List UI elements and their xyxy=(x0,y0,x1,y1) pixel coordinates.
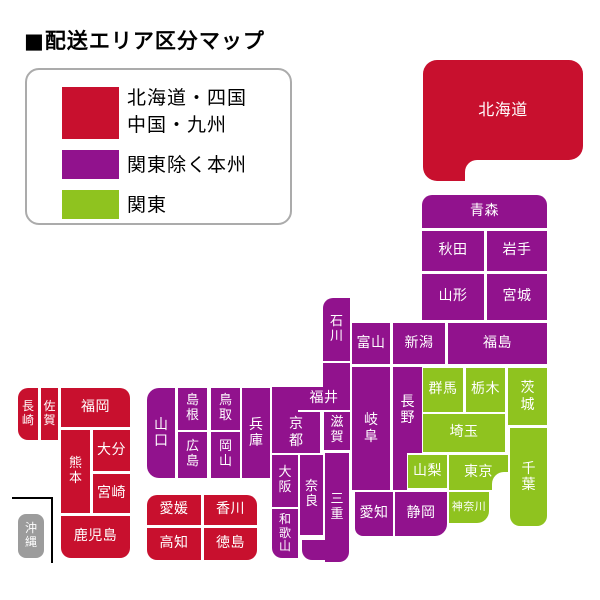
prefecture-label: 三重 xyxy=(331,493,344,523)
prefecture-cell-miyagi: 宮城 xyxy=(487,274,547,320)
prefecture-label: 島根 xyxy=(186,394,199,424)
prefecture-cell-kagawa: 香川 xyxy=(204,495,257,525)
prefecture-label: 新潟 xyxy=(405,336,434,351)
prefecture-label: 山形 xyxy=(439,289,468,304)
prefecture-cell-toyama: 富山 xyxy=(352,323,390,364)
prefecture-cell-chiba: 千葉 xyxy=(510,428,547,526)
prefecture-cell-gifu: 岐阜 xyxy=(352,367,390,490)
prefecture-label: 滋賀 xyxy=(331,416,344,446)
prefecture-label: 秋田 xyxy=(439,243,468,258)
prefecture-cell-miyazaki: 宮崎 xyxy=(93,474,130,513)
prefecture-cell-kyoto: 京都 xyxy=(272,412,320,453)
prefecture-label: 山梨 xyxy=(413,464,442,479)
prefecture-cell-shiga: 滋賀 xyxy=(324,412,350,450)
prefecture-label: 岡山 xyxy=(219,440,232,470)
tokyo-bay-notch xyxy=(492,472,508,490)
prefecture-cell-mie-foot xyxy=(302,540,328,560)
prefecture-label: 和歌山 xyxy=(279,513,291,554)
legend-swatch-red xyxy=(62,87,119,139)
prefecture-cell-nagano-leg xyxy=(393,452,407,490)
prefecture-label: 宮城 xyxy=(503,289,532,304)
prefecture-cell-nara: 奈良 xyxy=(300,455,323,535)
prefecture-label: 岐阜 xyxy=(364,412,378,444)
prefecture-label: 沖縄 xyxy=(25,522,37,550)
prefecture-cell-ishikawa: 石川 xyxy=(323,298,350,361)
legend: 北海道・四国 中国・九州 関東除く本州 関東 xyxy=(25,68,292,225)
okinawa-divider-line-vertical xyxy=(51,497,53,563)
prefecture-cell-fukushima: 福島 xyxy=(448,323,547,364)
prefecture-label: 長野 xyxy=(401,394,415,426)
prefecture-cell-iwate: 岩手 xyxy=(487,231,547,271)
prefecture-label: 徳島 xyxy=(216,536,245,551)
prefecture-cell-aichi: 愛知 xyxy=(355,492,393,536)
legend-label-purple: 関東除く本州 xyxy=(127,152,247,179)
prefecture-label: 宮崎 xyxy=(97,486,126,501)
prefecture-label: 奈良 xyxy=(305,480,318,510)
prefecture-label: 高知 xyxy=(160,536,189,551)
prefecture-label: 大阪 xyxy=(279,466,292,496)
prefecture-label: 香川 xyxy=(216,502,245,517)
legend-label-red: 北海道・四国 中国・九州 xyxy=(127,85,247,139)
prefecture-label: 群馬 xyxy=(429,382,458,397)
prefecture-cell-fukuoka: 福岡 xyxy=(61,388,130,427)
prefecture-label: 熊本 xyxy=(69,457,82,487)
prefecture-label: 石川 xyxy=(330,315,343,345)
legend-label-green: 関東 xyxy=(127,192,167,219)
prefecture-label: 埼玉 xyxy=(450,425,479,440)
prefecture-cell-tokushima: 徳島 xyxy=(204,528,257,560)
prefecture-label: 東京 xyxy=(464,465,493,480)
prefecture-cell-kagoshima: 鹿児島 xyxy=(61,516,130,558)
prefecture-cell-tottori: 鳥取 xyxy=(211,388,240,430)
prefecture-label: 福島 xyxy=(483,336,512,351)
prefecture-cell-kyoto-top xyxy=(272,387,298,414)
page-title: ■配送エリア区分マップ xyxy=(24,25,265,55)
prefecture-cell-okayama: 岡山 xyxy=(211,432,240,478)
prefecture-cell-nagano: 長野 xyxy=(393,367,422,453)
prefecture-cell-shizuoka: 静岡 xyxy=(395,492,447,536)
prefecture-label: 福岡 xyxy=(81,400,110,415)
prefecture-cell-hokkaido-foot xyxy=(423,130,465,181)
prefecture-cell-tochigi: 栃木 xyxy=(466,368,505,412)
prefecture-label: 千葉 xyxy=(522,461,536,493)
prefecture-cell-kanagawa: 神奈川 xyxy=(449,492,489,523)
prefecture-label: 愛媛 xyxy=(160,502,189,517)
prefecture-label: 富山 xyxy=(357,336,386,351)
prefecture-cell-okinawa: 沖縄 xyxy=(18,514,44,558)
prefecture-label: 鳥取 xyxy=(219,394,232,424)
okinawa-divider-line-horizontal xyxy=(12,497,53,499)
prefecture-label: 福井 xyxy=(310,391,339,406)
prefecture-cell-wakayama: 和歌山 xyxy=(272,509,298,558)
prefecture-cell-yamaguchi: 山口 xyxy=(147,388,175,478)
prefecture-cell-fukui-neck xyxy=(323,363,350,389)
prefecture-label: 茨城 xyxy=(521,380,535,412)
prefecture-label: 長崎 xyxy=(22,400,34,428)
prefecture-cell-yamagata: 山形 xyxy=(422,274,484,320)
prefecture-label: 愛知 xyxy=(360,506,389,521)
prefecture-cell-kochi: 高知 xyxy=(147,528,201,560)
prefecture-label: 大分 xyxy=(97,443,126,458)
prefecture-cell-shimane: 島根 xyxy=(178,388,207,430)
prefecture-label: 京都 xyxy=(289,416,303,448)
prefecture-cell-ehime: 愛媛 xyxy=(147,495,201,525)
prefecture-cell-saitama: 埼玉 xyxy=(423,414,505,452)
prefecture-cell-nagasaki: 長崎 xyxy=(18,388,38,440)
prefecture-cell-oita: 大分 xyxy=(93,430,130,471)
legend-swatch-green xyxy=(62,190,119,219)
prefecture-cell-gunma: 群馬 xyxy=(423,368,463,412)
prefecture-cell-aomori: 青森 xyxy=(422,195,547,228)
prefecture-label: 山口 xyxy=(154,417,168,449)
prefecture-cell-niigata: 新潟 xyxy=(393,323,445,364)
legend-swatch-purple xyxy=(62,150,119,179)
prefecture-label: 岩手 xyxy=(503,243,532,258)
prefecture-label: 兵庫 xyxy=(249,417,263,449)
prefecture-label: 静岡 xyxy=(407,506,436,521)
prefecture-label: 北海道 xyxy=(478,101,528,119)
prefecture-cell-yamanashi: 山梨 xyxy=(408,455,447,488)
prefecture-cell-hiroshima: 広島 xyxy=(178,432,207,478)
prefecture-cell-hyogo: 兵庫 xyxy=(242,388,270,478)
prefecture-cell-kumamoto: 熊本 xyxy=(61,430,90,513)
prefecture-label: 青森 xyxy=(470,204,499,219)
prefecture-label: 神奈川 xyxy=(452,501,487,513)
prefecture-label: 栃木 xyxy=(471,382,500,397)
prefecture-cell-akita: 秋田 xyxy=(422,231,484,271)
prefecture-label: 広島 xyxy=(186,440,199,470)
prefecture-label: 佐賀 xyxy=(44,400,56,428)
prefecture-cell-ibaraki: 茨城 xyxy=(508,368,547,425)
prefecture-cell-fukui: 福井 xyxy=(298,387,350,410)
prefecture-cell-mie: 三重 xyxy=(325,453,349,562)
prefecture-label: 鹿児島 xyxy=(74,529,118,544)
prefecture-cell-saga: 佐賀 xyxy=(41,388,58,440)
prefecture-cell-osaka: 大阪 xyxy=(272,455,298,507)
